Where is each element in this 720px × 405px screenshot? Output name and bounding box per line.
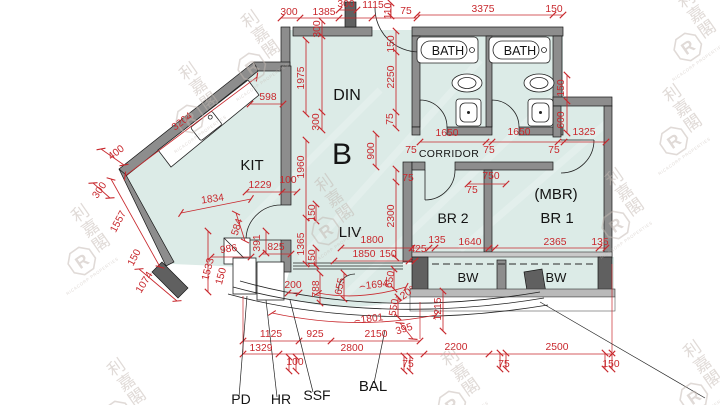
floor-plan-page: DINBKITLIVCORRIDORBR 2(MBR)BR 1BATHBATHB… [0, 0, 720, 405]
room-label-bw-1: BW [458, 270, 480, 285]
wall-stub-1074 [152, 262, 188, 298]
dimension-label: 150 [602, 359, 619, 370]
dimension-label: 1229 [249, 180, 272, 191]
dimension-label: 1650 [508, 127, 531, 138]
dimension-label: 425 [409, 244, 426, 255]
room-label-corridor: CORRIDOR [419, 148, 479, 160]
bw-sill [410, 289, 615, 297]
left-step-wall-v [281, 27, 290, 66]
dimension-label: 1960 [296, 155, 307, 178]
bath-bottom-wall-a [412, 127, 420, 135]
dimension-label: 395 [394, 322, 414, 338]
dimension-label: 1975 [296, 66, 307, 89]
watermark-en-text: RICACORP PROPERTIES [657, 136, 711, 176]
room-label-kit: KIT [240, 157, 263, 174]
dimension-label: 1850 [353, 249, 376, 260]
dimension-label: 150 [545, 4, 562, 15]
dimension-label: 1074 [134, 270, 156, 295]
watermark-monogram: R [442, 394, 463, 405]
dimension-label: 75 [400, 6, 412, 17]
corridor-bottom-wall-b [455, 162, 553, 170]
dimension-label: 300 [311, 113, 322, 130]
room-label-bath-1: BATH [432, 44, 464, 58]
dimension-label: 100 [279, 175, 296, 186]
watermark-stamp: R利嘉閣RICACORP PROPERTIES [620, 81, 714, 176]
din-top-wall [293, 27, 372, 36]
dimension-label: 135 [428, 235, 445, 246]
watermark-cn-text: 利嘉閣 [438, 345, 483, 400]
dimension-label: 1329 [250, 343, 273, 354]
dimension-label: 75 [548, 145, 560, 156]
dimension-label: 1115 [362, 0, 384, 11]
dimension-label: 3375 [472, 4, 495, 15]
duct-box-pd [233, 258, 256, 294]
dimension-label: 75 [405, 145, 417, 156]
watermark-monogram: R [678, 36, 699, 59]
watermark-en-text: RICACORP PROPERTIES [65, 256, 119, 296]
room-label-br2: BR 2 [437, 210, 468, 226]
watermark-cn-text: 利嘉閣 [68, 201, 113, 256]
room-label-hr: HR [271, 391, 291, 405]
dimension-label: 1650 [436, 128, 459, 139]
dimension-label: 598 [259, 92, 276, 103]
dimension-label: 100 [286, 357, 303, 368]
dimension-label: 1640 [459, 237, 482, 248]
right-step-wall-h [553, 97, 612, 106]
toilet-1 [456, 99, 481, 126]
dimension-label: 75 [483, 145, 495, 156]
floor-plan-canvas: DINBKITLIVCORRIDORBR 2(MBR)BR 1BATHBATHB… [0, 0, 720, 405]
room-label-bw-2: BW [546, 270, 568, 285]
dimension-label: 150 [214, 266, 229, 286]
dimension-label: 900 [366, 142, 377, 159]
dimension-label: 925 [306, 329, 323, 340]
dimension-label: 300 [280, 7, 297, 18]
dimension-label: 200 [284, 280, 301, 291]
dimension-label: 150 [386, 35, 397, 52]
washbasin-2 [524, 74, 554, 92]
dimension-label: 2150 [365, 329, 388, 340]
dimension-label: 150 [307, 204, 318, 221]
watermark-cn-text: 利嘉閣 [238, 7, 283, 62]
dimension-label: 400 [106, 143, 127, 162]
dimension-label: 150 [556, 79, 567, 96]
bath-top-wall [412, 27, 563, 36]
washbasin-1 [452, 74, 482, 92]
dimension-label: 75 [402, 173, 414, 184]
room-label-din: DIN [333, 87, 361, 104]
room-label-unit-b: B [332, 138, 352, 171]
dimension-label: 2800 [341, 343, 364, 354]
dimension-label: 75 [498, 359, 510, 370]
dimension-label: 2250 [386, 65, 397, 88]
dimension-label: 2500 [546, 342, 569, 353]
watermark-monogram: R [664, 130, 685, 153]
room-label-pd: PD [231, 391, 250, 405]
dimension-label: 1365 [296, 232, 307, 255]
watermark-cn-text: 利嘉閣 [104, 355, 149, 405]
dimension-label: 600 [556, 111, 567, 128]
room-label-ssf: SSF [303, 387, 330, 403]
dimension-label: 1215 [433, 297, 444, 320]
corridor-bottom-wall-a [412, 162, 425, 170]
dimension-label: 150 [126, 247, 144, 268]
dimension-label: 135 [591, 237, 608, 248]
watermark-monogram: R [72, 250, 93, 273]
bedroom-bottom-wall [412, 252, 612, 257]
dimension-label: 75 [385, 113, 396, 125]
dimension-label: 2300 [386, 204, 397, 227]
dimension-label: 1800 [361, 235, 384, 246]
dimension-label: 391 [252, 234, 263, 251]
watermark-stamp: R利嘉閣RICACORP PROPERTIES [28, 201, 122, 296]
dimension-label: 1557 [109, 209, 130, 235]
dimension-label: 75 [466, 185, 478, 196]
bay-window-fill [412, 257, 614, 289]
dimension-label: 825 [267, 242, 284, 253]
dimension-label: 750 [482, 171, 499, 182]
dimension-label: 1325 [573, 127, 596, 138]
room-label-bal: BAL [359, 378, 387, 395]
dimension-label: 1125 [260, 329, 282, 340]
dimension-label: 1385 [313, 7, 336, 18]
room-label-bath-2: BATH [504, 44, 536, 58]
dimension-label: 300 [337, 0, 354, 10]
watermark-stamp: R利嘉閣RICACORP PROPERTIES [64, 355, 158, 405]
dimension-label: 788 [311, 280, 322, 297]
room-label-br1: BR 1 [540, 210, 573, 227]
watermark-cn-text: 利嘉閣 [680, 337, 720, 392]
watermark-cn-text: 利嘉閣 [660, 81, 705, 136]
br2-mbr-wall [484, 170, 492, 252]
watermark-stamp: R利嘉閣RICACORP PROPERTIES [634, 0, 720, 82]
dimension-label: 75 [402, 359, 414, 370]
room-label-mbr: (MBR) [534, 186, 577, 203]
toilet-2 [528, 99, 553, 126]
dimension-label: 2365 [544, 237, 567, 248]
dimension-label: 300 [312, 20, 323, 37]
dimension-label: 110 [383, 3, 394, 20]
dimension-label: 150 [379, 249, 396, 260]
watermark-stamp: R利嘉閣RICACORP PROPERTIES [640, 337, 720, 405]
dimension-label: ⌢1801 [353, 312, 384, 327]
